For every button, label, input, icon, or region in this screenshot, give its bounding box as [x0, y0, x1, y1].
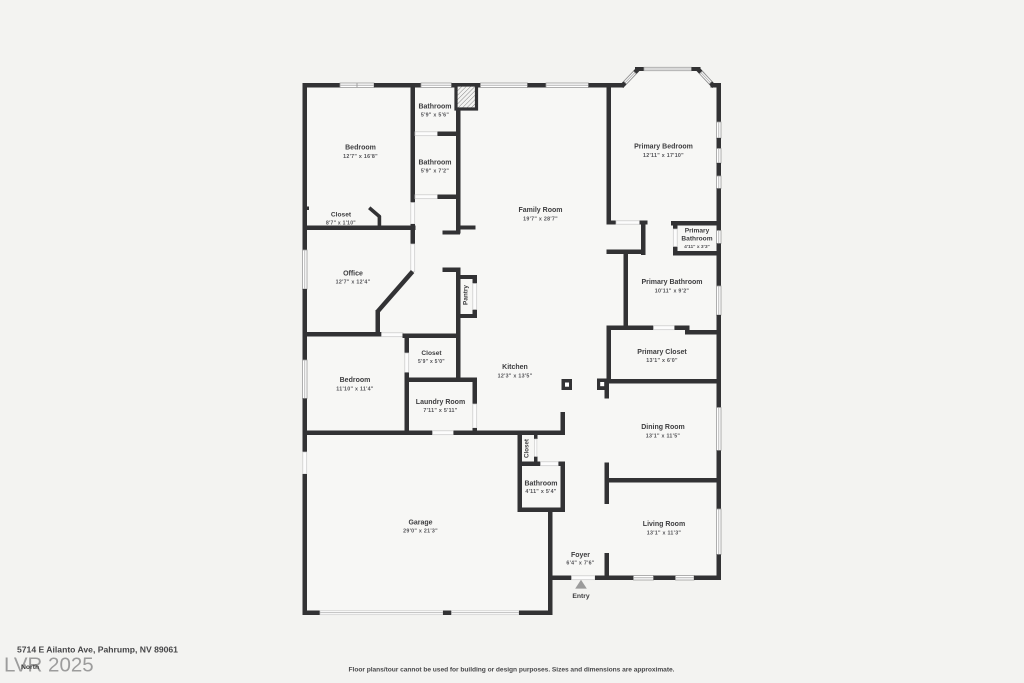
- svg-text:LVR 2025: LVR 2025: [4, 654, 94, 677]
- svg-text:12'7" x 12'4": 12'7" x 12'4": [336, 280, 371, 286]
- svg-text:5'9" x 7'2": 5'9" x 7'2": [421, 169, 450, 175]
- svg-text:Closet: Closet: [421, 350, 442, 357]
- svg-text:19'7" x 28'7": 19'7" x 28'7": [523, 217, 558, 223]
- svg-text:13'1" x 11'3": 13'1" x 11'3": [647, 531, 682, 537]
- svg-text:13'1" x 11'5": 13'1" x 11'5": [646, 434, 681, 440]
- svg-text:5'9" x 5'6": 5'9" x 5'6": [421, 113, 450, 119]
- svg-text:Primary Closet: Primary Closet: [637, 349, 687, 356]
- svg-text:4'11" x 3'3": 4'11" x 3'3": [684, 244, 710, 250]
- svg-text:Dining Room: Dining Room: [641, 424, 685, 431]
- svg-text:Bedroom: Bedroom: [345, 145, 376, 152]
- svg-text:13'1" x 6'0": 13'1" x 6'0": [646, 358, 678, 364]
- svg-text:North: North: [21, 664, 39, 671]
- svg-text:Entry: Entry: [572, 593, 590, 600]
- svg-text:7'11" x 5'11": 7'11" x 5'11": [423, 408, 457, 414]
- svg-text:Primary: Primary: [685, 228, 710, 235]
- svg-text:Pantry: Pantry: [463, 285, 470, 305]
- svg-text:Living Room: Living Room: [643, 521, 685, 528]
- svg-text:Laundry Room: Laundry Room: [416, 399, 465, 406]
- svg-text:Foyer: Foyer: [571, 552, 590, 559]
- svg-text:5'9" x 5'0": 5'9" x 5'0": [418, 359, 445, 365]
- svg-text:6'4" x 7'6": 6'4" x 7'6": [566, 561, 595, 567]
- svg-text:Primary Bedroom: Primary Bedroom: [634, 144, 693, 151]
- svg-text:Kitchen: Kitchen: [502, 364, 528, 371]
- svg-text:4'11" x 5'4": 4'11" x 5'4": [525, 489, 556, 495]
- svg-text:11'10" x 11'4": 11'10" x 11'4": [336, 387, 374, 393]
- svg-text:Closet: Closet: [331, 212, 352, 219]
- svg-text:Bathroom: Bathroom: [418, 160, 451, 167]
- svg-text:12'3" x 13'5": 12'3" x 13'5": [498, 374, 533, 380]
- svg-text:Family Room: Family Room: [519, 207, 563, 214]
- svg-text:Bathroom: Bathroom: [524, 481, 557, 488]
- svg-text:8'7" x 1'10": 8'7" x 1'10": [326, 221, 356, 227]
- svg-text:Bathroom: Bathroom: [681, 236, 712, 243]
- svg-text:12'7" x 16'8": 12'7" x 16'8": [343, 154, 378, 160]
- svg-text:Bathroom: Bathroom: [418, 104, 451, 111]
- svg-text:Floor plans/tour cannot be use: Floor plans/tour cannot be used for buil…: [349, 667, 675, 674]
- svg-text:Garage: Garage: [408, 520, 432, 527]
- svg-text:Closet: Closet: [524, 439, 531, 458]
- svg-text:Bedroom: Bedroom: [340, 377, 371, 384]
- svg-text:Office: Office: [343, 271, 363, 278]
- svg-text:29'0" x 21'3": 29'0" x 21'3": [403, 529, 438, 535]
- svg-text:12'11" x 17'10": 12'11" x 17'10": [643, 153, 684, 159]
- svg-text:10'11" x 9'2": 10'11" x 9'2": [655, 289, 690, 295]
- svg-text:Primary Bathroom: Primary Bathroom: [641, 279, 702, 286]
